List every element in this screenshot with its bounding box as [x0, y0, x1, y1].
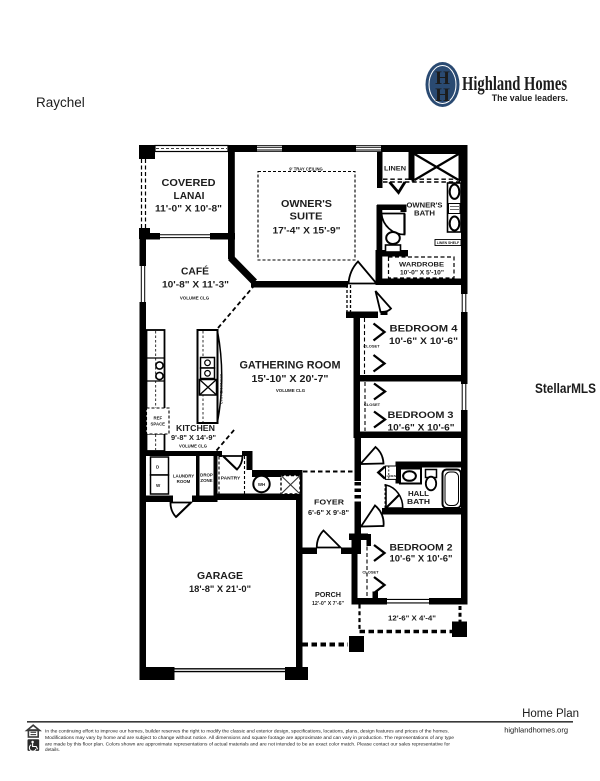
svg-text:HALL: HALL — [408, 490, 430, 498]
svg-text:highlandhomes.org: highlandhomes.org — [504, 726, 568, 735]
svg-text:10'-0" X 5'-10": 10'-0" X 5'-10" — [400, 270, 444, 277]
svg-text:CLOSET: CLOSET — [363, 344, 380, 349]
svg-text:VOLUME CLG: VOLUME CLG — [276, 388, 306, 393]
svg-text:Raychel: Raychel — [36, 95, 85, 110]
svg-text:ZONE: ZONE — [200, 478, 212, 483]
svg-text:VOLUME CLG: VOLUME CLG — [180, 296, 210, 301]
svg-text:ROOM: ROOM — [177, 479, 191, 484]
svg-text:9' TRAY CEILING: 9' TRAY CEILING — [289, 167, 323, 172]
svg-text:SUITE: SUITE — [290, 212, 323, 223]
svg-text:LINEN: LINEN — [384, 166, 406, 173]
svg-text:FOYER: FOYER — [314, 498, 345, 507]
svg-text:WARDROBE: WARDROBE — [399, 262, 445, 269]
svg-text:15'-10" X 20'-7": 15'-10" X 20'-7" — [252, 374, 329, 385]
svg-text:10'-8" X 11'-3": 10'-8" X 11'-3" — [162, 279, 229, 290]
svg-text:LAUNDRY: LAUNDRY — [173, 474, 194, 479]
svg-text:6'-6" X 9'-8": 6'-6" X 9'-8" — [308, 510, 349, 517]
svg-text:11'-0" X 10'-8": 11'-0" X 10'-8" — [155, 203, 222, 214]
svg-text:WH: WH — [258, 482, 265, 487]
svg-text:Home Plan: Home Plan — [522, 708, 579, 720]
svg-text:10'-6" X 10'-6": 10'-6" X 10'-6" — [390, 554, 453, 564]
svg-text:details.: details. — [45, 747, 60, 752]
svg-text:12'-0" X 7'-6": 12'-0" X 7'-6" — [312, 601, 345, 607]
svg-text:In the continuing effort to im: In the continuing effort to improve our … — [45, 729, 449, 734]
svg-text:SPACE: SPACE — [151, 422, 166, 427]
svg-text:12'-6" X 4'-4": 12'-6" X 4'-4" — [388, 616, 436, 623]
svg-text:BEDROOM 3: BEDROOM 3 — [388, 410, 454, 420]
svg-text:PANTRY: PANTRY — [221, 476, 241, 482]
svg-text:COVERED: COVERED — [162, 178, 216, 189]
svg-text:LANAI: LANAI — [174, 191, 205, 202]
svg-text:CLOSET: CLOSET — [364, 402, 381, 407]
svg-text:PORCH: PORCH — [315, 592, 341, 599]
svg-text:18'-8" X 21'-0": 18'-8" X 21'-0" — [189, 583, 251, 594]
svg-text:CTR HEIGHT BAR: CTR HEIGHT BAR — [220, 374, 224, 404]
svg-text:9'-8" X 14'-9": 9'-8" X 14'-9" — [171, 433, 216, 442]
svg-text:CLOSET: CLOSET — [362, 570, 379, 575]
svg-text:REF: REF — [153, 416, 162, 421]
svg-text:OWNER'S: OWNER'S — [281, 199, 332, 210]
svg-text:OWNER'S: OWNER'S — [407, 203, 443, 210]
svg-text:H: H — [435, 85, 450, 106]
svg-text:The value leaders.: The value leaders. — [492, 93, 568, 103]
svg-text:10'-6" X 10'-6": 10'-6" X 10'-6" — [389, 336, 458, 346]
svg-text:10'-6" X 10'-6": 10'-6" X 10'-6" — [388, 423, 455, 433]
svg-text:BATH: BATH — [407, 498, 430, 506]
svg-text:KITCHEN: KITCHEN — [176, 424, 215, 433]
svg-text:are made by this floor plan. C: are made by this floor plan. Colors show… — [45, 741, 450, 746]
svg-text:LINEN SHELF: LINEN SHELF — [437, 241, 459, 245]
svg-text:Modifications may vary by home: Modifications may vary by home and are s… — [45, 735, 454, 740]
svg-text:DROP: DROP — [200, 473, 213, 478]
svg-text:17'-4" X 15'-9": 17'-4" X 15'-9" — [273, 225, 341, 236]
svg-text:GARAGE: GARAGE — [197, 571, 243, 582]
svg-text:CAFÉ: CAFÉ — [181, 265, 209, 278]
svg-text:VOLUME CLG: VOLUME CLG — [179, 444, 207, 449]
svg-text:StellarMLS: StellarMLS — [535, 380, 596, 396]
svg-text:BEDROOM 2: BEDROOM 2 — [390, 543, 453, 553]
svg-text:BATH: BATH — [414, 211, 435, 218]
svg-text:Highland Homes: Highland Homes — [462, 74, 567, 95]
svg-text:LINEN: LINEN — [387, 474, 397, 478]
svg-text:BEDROOM 4: BEDROOM 4 — [390, 324, 458, 334]
svg-text:GATHERING ROOM: GATHERING ROOM — [240, 360, 341, 372]
